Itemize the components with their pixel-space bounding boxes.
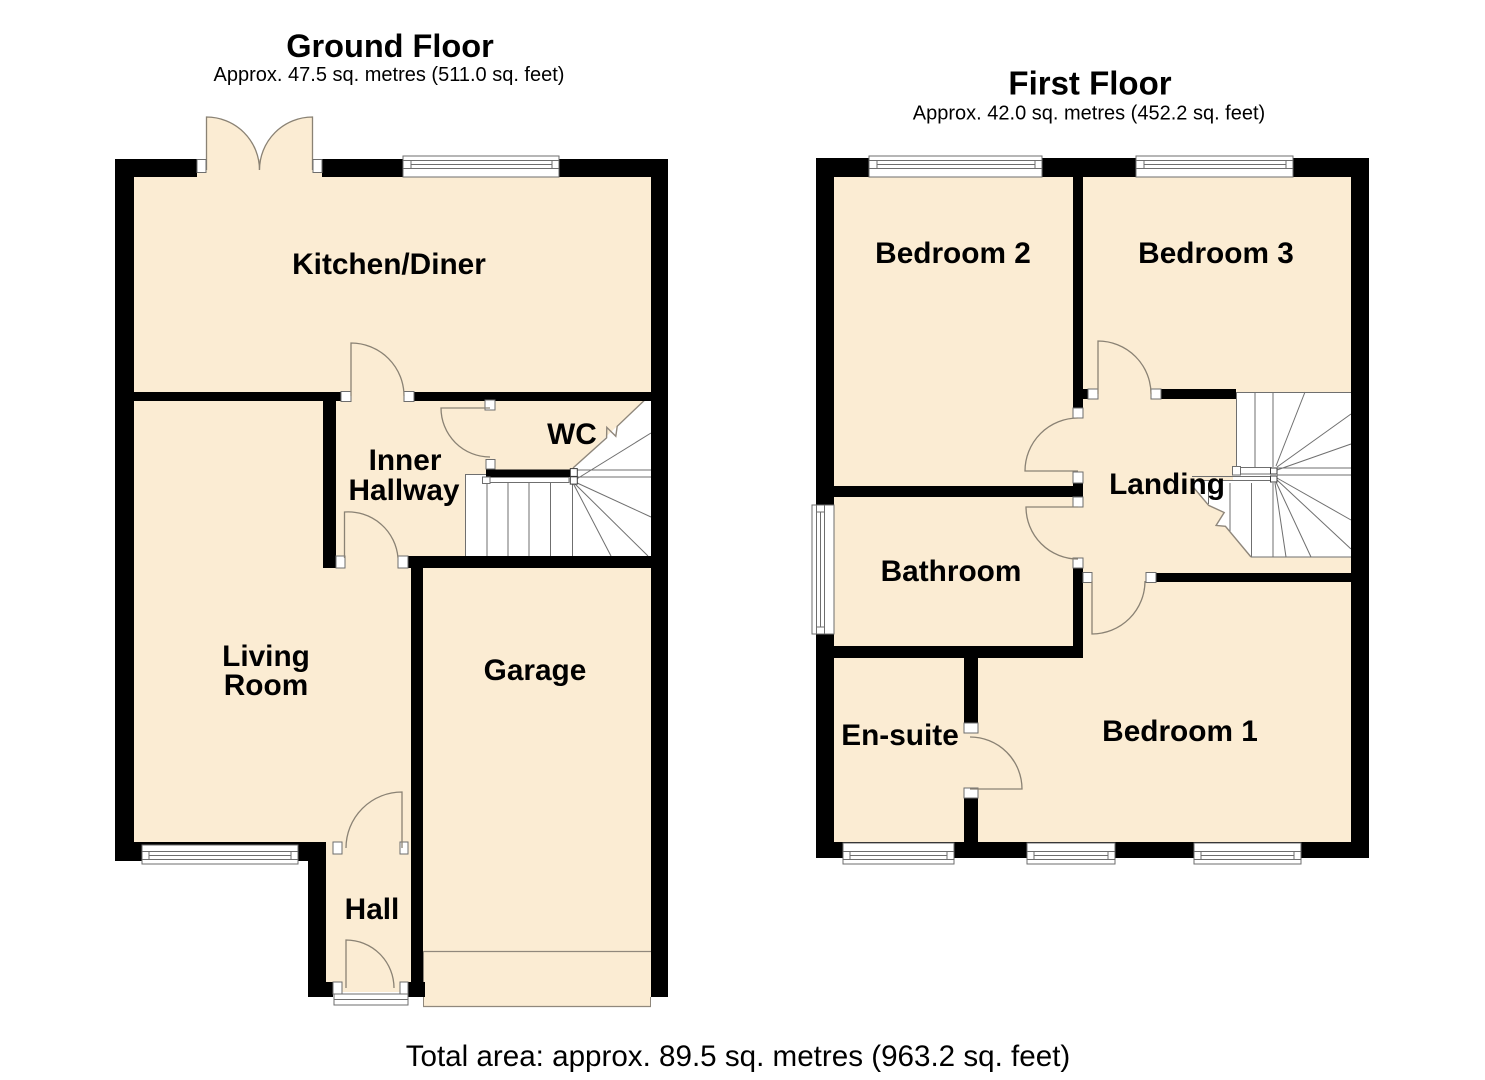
svg-text:Approx. 42.0 sq. metres (452.2: Approx. 42.0 sq. metres (452.2 sq. feet) — [913, 103, 1265, 125]
svg-text:Bedroom 3: Bedroom 3 — [1138, 237, 1294, 270]
svg-text:Landing: Landing — [1109, 468, 1225, 501]
svg-text:Room: Room — [224, 669, 308, 702]
svg-text:Hall: Hall — [345, 893, 400, 926]
svg-text:Hallway: Hallway — [349, 474, 460, 507]
svg-text:Approx. 47.5 sq. metres (511.0: Approx. 47.5 sq. metres (511.0 sq. feet) — [214, 64, 565, 86]
svg-text:Inner: Inner — [369, 444, 442, 477]
svg-text:First Floor: First Floor — [1008, 65, 1171, 102]
svg-text:Bedroom 1: Bedroom 1 — [1102, 715, 1258, 748]
svg-text:Bathroom: Bathroom — [881, 555, 1022, 588]
svg-text:Total area: approx. 89.5 sq. m: Total area: approx. 89.5 sq. metres (963… — [406, 1040, 1071, 1073]
svg-text:Kitchen/Diner: Kitchen/Diner — [292, 248, 486, 281]
svg-text:Garage: Garage — [484, 654, 587, 687]
svg-text:En-suite: En-suite — [841, 719, 959, 752]
svg-text:Bedroom 2: Bedroom 2 — [875, 237, 1031, 270]
svg-text:Ground Floor: Ground Floor — [286, 28, 494, 64]
svg-text:WC: WC — [547, 418, 597, 451]
